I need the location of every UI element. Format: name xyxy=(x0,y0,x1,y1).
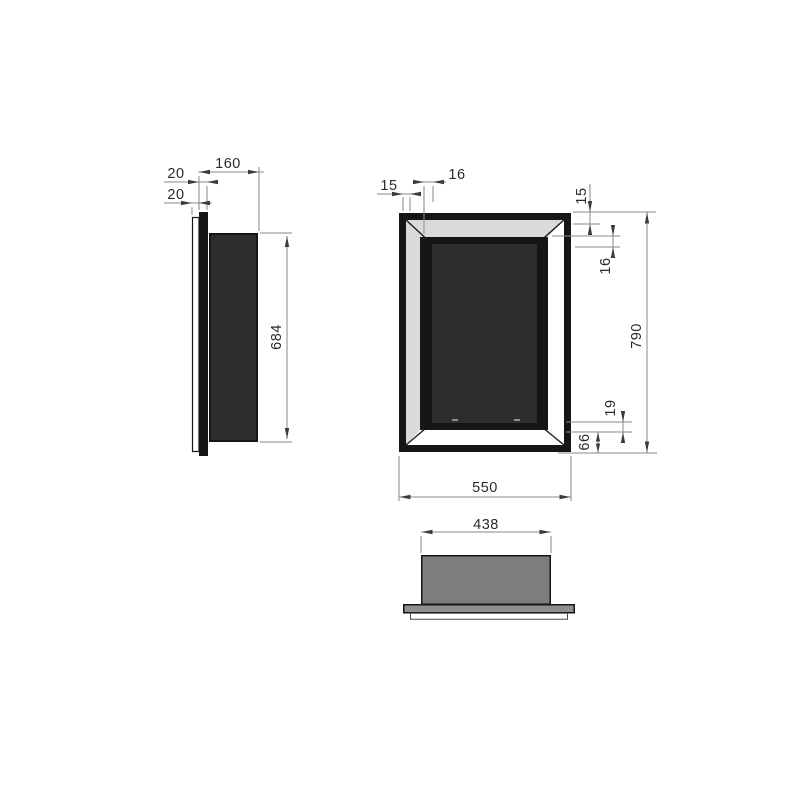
frame-bevel-left xyxy=(406,220,420,445)
bottom-extension-lines xyxy=(421,536,551,553)
bottom-view: 438 xyxy=(404,517,575,619)
dim-label-face-top: 15 xyxy=(574,187,590,204)
casing-body-top xyxy=(422,556,551,605)
firebox-opening xyxy=(432,244,537,423)
burner-mark-left xyxy=(452,419,458,421)
side-view: 160 20 20 684 xyxy=(164,156,292,456)
dim-label-bevel-left: 16 xyxy=(448,167,465,183)
dim-label-depth: 160 xyxy=(215,156,241,172)
wall-opening-outline xyxy=(411,613,568,619)
dim-label-bevel-top: 16 xyxy=(598,257,614,274)
dim-label-plate: 20 xyxy=(167,187,184,203)
dim-label-overall-width: 550 xyxy=(472,480,498,496)
dim-label-slot-offset: 19 xyxy=(603,399,619,416)
firebox-body-side xyxy=(210,234,257,441)
dim-label-bottom-margin: 66 xyxy=(577,433,593,450)
dim-label-overall-height: 790 xyxy=(629,323,645,349)
frame-plate-top xyxy=(404,605,575,613)
dim-label-body-width: 438 xyxy=(473,517,499,533)
front-flange xyxy=(199,212,208,456)
dim-label-flange: 20 xyxy=(167,166,184,182)
wall-plate-outline xyxy=(193,218,200,452)
technical-drawing: 160 20 20 684 xyxy=(0,0,800,800)
dim-label-body-height: 684 xyxy=(269,324,285,350)
burner-mark-right xyxy=(514,419,520,421)
front-view: 15 16 15 16 19 66 790 550 xyxy=(377,167,657,501)
drawing-svg: 160 20 20 684 xyxy=(0,0,800,800)
frame-bevel-top xyxy=(406,220,564,237)
dim-label-face-left: 15 xyxy=(380,178,397,194)
